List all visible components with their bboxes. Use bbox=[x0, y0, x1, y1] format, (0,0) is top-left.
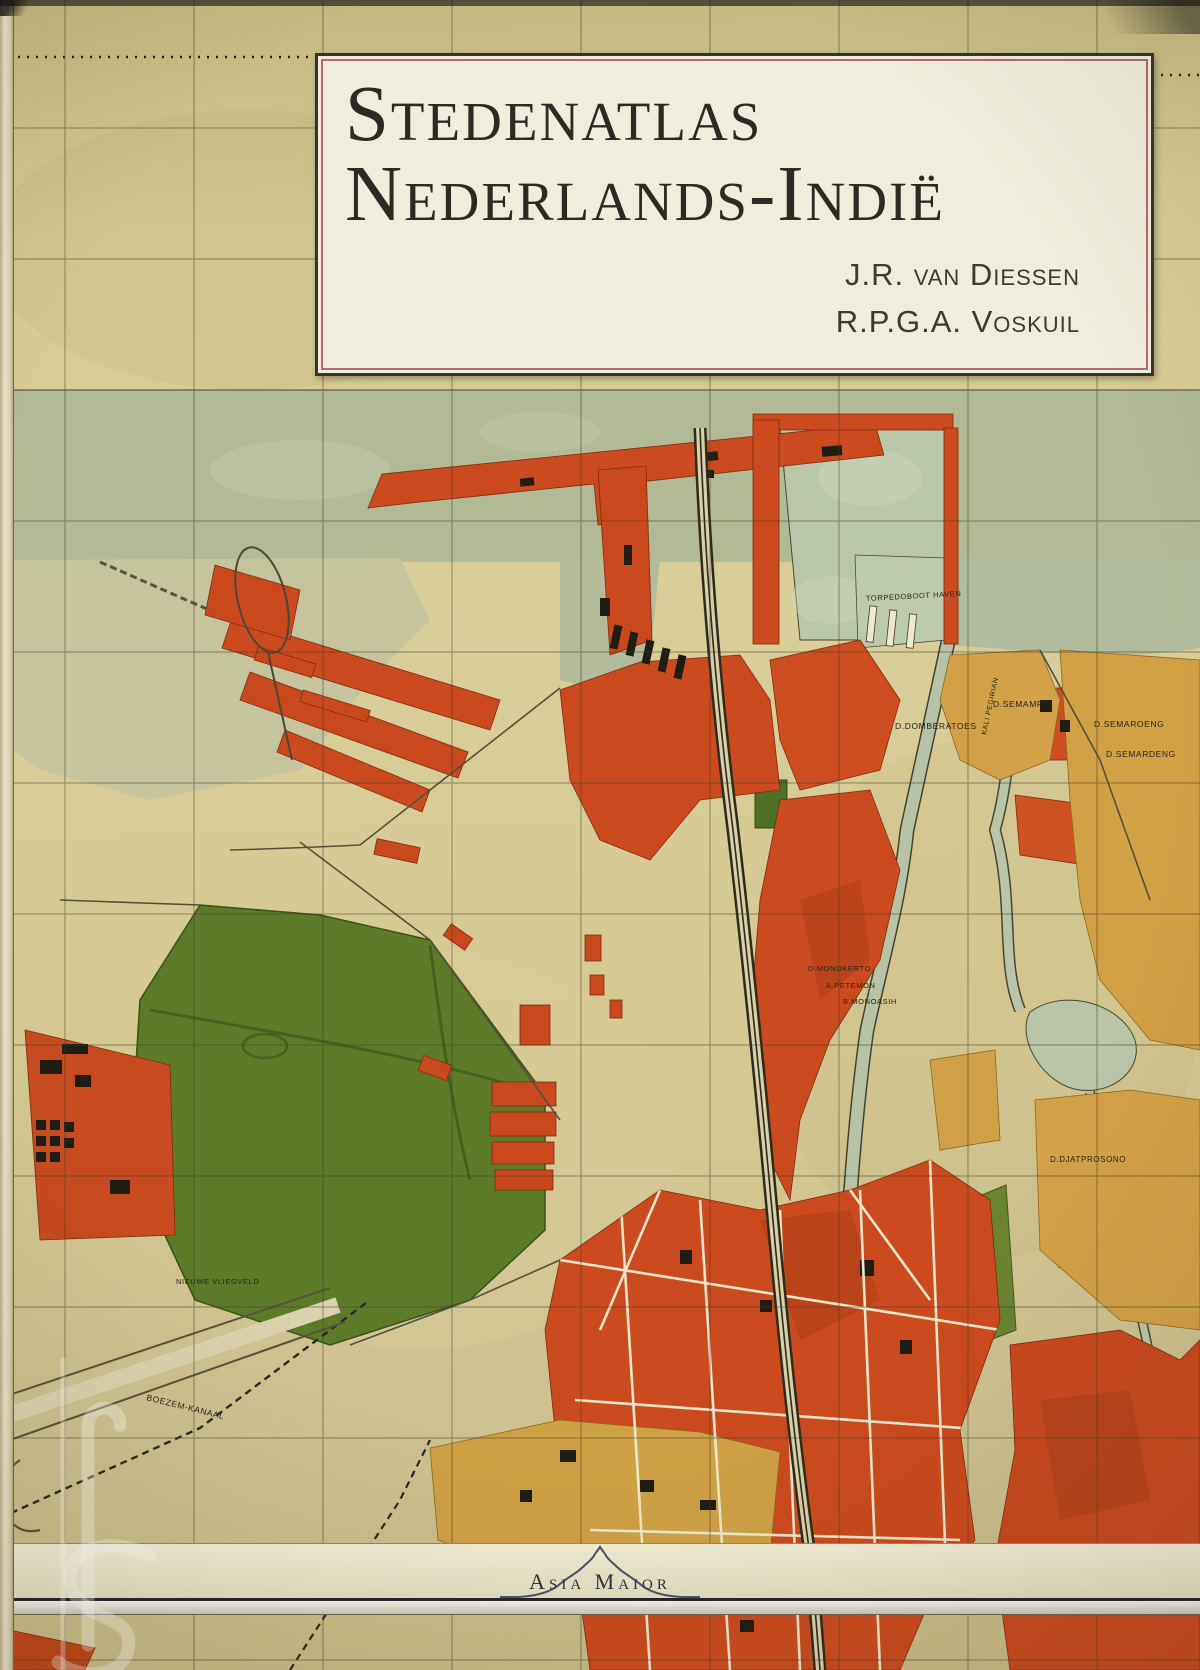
map-label-petemon: A.PETEMON bbox=[826, 981, 876, 990]
map-label-semaroeng: D.SEMAROENG bbox=[1094, 719, 1164, 729]
title-panel-inner-border: Stedenatlas Nederlands-Indië J.R. van Di… bbox=[321, 59, 1148, 370]
photo-corner-top-left bbox=[0, 0, 34, 16]
map-label-semardeng: D.SEMARDENG bbox=[1106, 749, 1176, 759]
book-title-line2: Nederlands-Indië bbox=[323, 155, 1146, 235]
map-label-monokerto: D.MONOKERTO bbox=[808, 964, 871, 973]
map-label-vliegveld: NIEUWE VLIEGVELD bbox=[176, 1277, 259, 1286]
book-title-line1: Stedenatlas bbox=[323, 75, 1146, 155]
book-cover-photo: TORPEDOBOOT HAVEN D.SEMAMPIR D.DOMBERATO… bbox=[0, 0, 1200, 1670]
author-2: R.P.G.A. Voskuil bbox=[836, 298, 1080, 345]
photo-top-shadow bbox=[0, 0, 1200, 6]
author-names: J.R. van Diessen R.P.G.A. Voskuil bbox=[836, 251, 1080, 345]
map-label-domberatoes: D.DOMBERATOES bbox=[895, 721, 977, 731]
author-1: J.R. van Diessen bbox=[836, 251, 1080, 298]
map-label-djatprosono: D.DJATPROSONO bbox=[1050, 1155, 1126, 1164]
seller-watermark-glyph bbox=[0, 1330, 260, 1670]
title-panel: Stedenatlas Nederlands-Indië J.R. van Di… bbox=[315, 53, 1154, 376]
map-label-semampir: D.SEMAMPIR bbox=[993, 699, 1053, 709]
book-page-edge bbox=[0, 0, 14, 1670]
map-label-monoasih: B.MONOASIH bbox=[843, 997, 897, 1006]
photo-corner-top-right bbox=[1070, 0, 1200, 34]
